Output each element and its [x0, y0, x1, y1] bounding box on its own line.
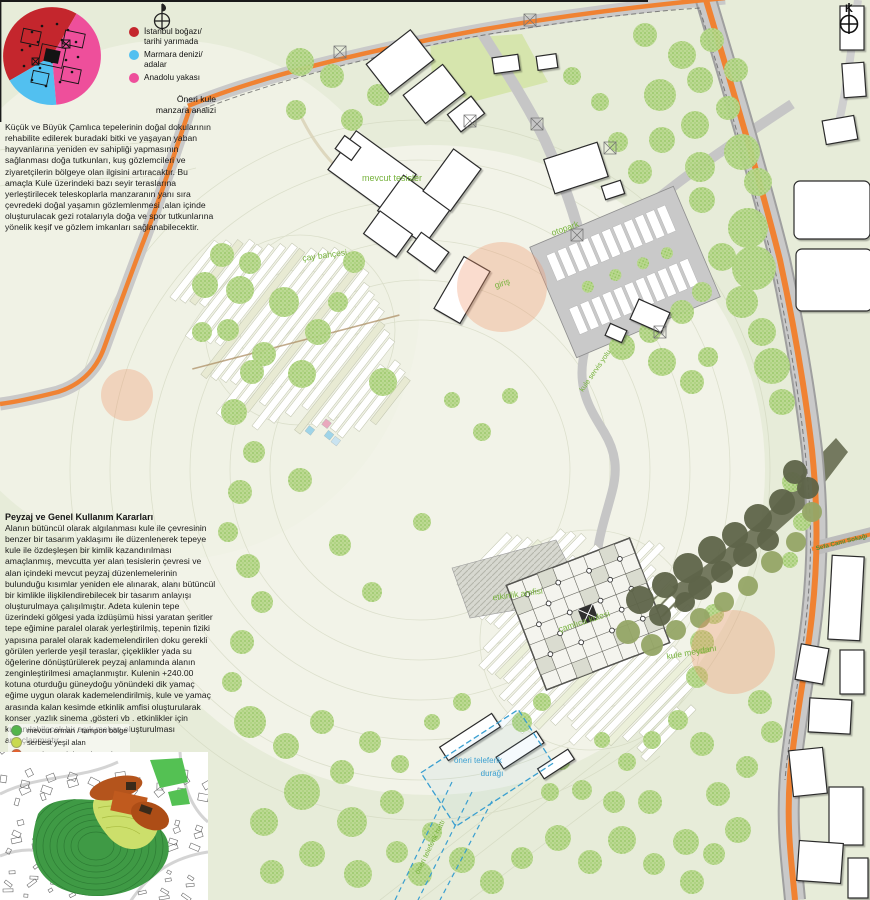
section-heading: Peyzaj ve Genel Kullanım Kararları [5, 512, 217, 522]
tree-icon [341, 109, 363, 131]
tree-icon [222, 672, 242, 692]
tree-icon [192, 272, 218, 298]
tree-icon [305, 319, 331, 345]
tree-icon [473, 423, 491, 441]
tree-icon [424, 714, 440, 730]
tree-icon [210, 243, 234, 267]
building [848, 858, 868, 898]
tree-icon [453, 693, 471, 711]
tree-icon [680, 870, 704, 894]
tree-icon [685, 152, 715, 182]
building [797, 841, 844, 884]
tree-icon [578, 850, 602, 874]
tree-icon [545, 825, 571, 851]
tree-icon [284, 774, 320, 810]
dark-tree-icon [626, 586, 654, 614]
building [795, 644, 829, 684]
tree-icon [782, 552, 798, 568]
site-plan-page: mevcut tesisler otopark çay bahçesi giri… [0, 0, 870, 900]
dark-tree-icon [733, 543, 757, 567]
tree-icon [541, 783, 559, 801]
olive-tree-icon [641, 634, 663, 656]
label-mevcut-tesisler: mevcut tesisler [362, 173, 422, 183]
building [536, 54, 558, 71]
plan-dot [31, 79, 34, 82]
tree-icon [511, 847, 533, 869]
building [794, 181, 870, 239]
tree-icon [698, 347, 718, 367]
paragraph-nature: Küçük ve Büyük Çamlıca tepelerinin doğal… [5, 122, 217, 234]
legend-item-istanbul: İstanbul boğazı/ tarihi yarımada [129, 27, 203, 46]
dark-tree-icon [757, 529, 779, 551]
landuse-minimap [0, 752, 208, 900]
tree-icon [748, 690, 772, 714]
tree-icon [329, 534, 351, 556]
tree-icon [754, 348, 790, 384]
tree-icon [563, 67, 581, 85]
tree-icon [299, 841, 325, 867]
olive-tree-icon [616, 620, 640, 644]
tree-icon [533, 693, 551, 711]
dark-tree-icon [744, 504, 772, 532]
tree-icon [413, 513, 431, 531]
building [822, 115, 858, 144]
building [842, 62, 866, 97]
tree-icon [732, 246, 776, 290]
tree-icon [250, 808, 278, 836]
tree-icon [649, 127, 675, 153]
olive-tree-icon [786, 532, 806, 552]
tree-icon [706, 782, 730, 806]
tree-icon [648, 348, 676, 376]
tree-icon [330, 760, 354, 784]
tree-icon [670, 300, 694, 324]
tree-icon [644, 79, 676, 111]
dark-tree-icon [698, 536, 726, 564]
tree-icon [761, 721, 783, 743]
landuse-label: mevcut orman / tampon bölge [27, 726, 127, 735]
tree-icon [724, 58, 748, 82]
tree-icon [700, 28, 724, 52]
legend-label: Marmara denizi/ adalar [144, 50, 203, 69]
pink-dot-icon [129, 73, 139, 83]
landuse-label: serbest yeşil alan [27, 738, 86, 747]
tree-icon [618, 753, 636, 771]
tree-icon [369, 368, 397, 396]
plan-dot [56, 23, 59, 26]
tree-icon [236, 554, 260, 578]
tree-icon [239, 252, 261, 274]
tree-icon [260, 860, 284, 884]
plan-dot [39, 67, 42, 70]
tree-icon [288, 360, 316, 388]
tree-icon [344, 860, 372, 888]
tree-icon [736, 756, 758, 778]
tree-icon [703, 843, 725, 865]
tree-icon [328, 292, 348, 312]
landuse-item-forest: mevcut orman / tampon bölge [11, 725, 127, 736]
tree-icon [728, 208, 768, 248]
dark-tree-icon [797, 477, 819, 499]
landuse-item-freegreen: serbest yeşil alan [11, 737, 127, 748]
legend-item-marmara: Marmara denizi/ adalar [129, 50, 203, 69]
dark-tree-icon [652, 572, 678, 598]
tree-icon [480, 870, 504, 894]
tree-icon [288, 468, 312, 492]
tree-icon [633, 23, 657, 47]
building [789, 747, 828, 796]
olive-tree-icon [738, 576, 758, 596]
legend-item-anadolu: Anadolu yakası [129, 73, 203, 83]
tree-icon [251, 591, 273, 613]
olive-tree-icon [761, 551, 783, 573]
section-landscape: Peyzaj ve Genel Kullanım Kararları Alanı… [5, 512, 217, 746]
tree-icon [769, 389, 795, 415]
olive-tree-icon [802, 502, 822, 522]
tree-icon [681, 111, 709, 139]
tree-icon [226, 276, 254, 304]
dark-tree-icon [769, 489, 795, 515]
tree-icon [643, 731, 661, 749]
plan-dot [59, 81, 62, 84]
tree-icon [286, 100, 306, 120]
building [829, 787, 863, 845]
tree-icon [252, 342, 276, 366]
tree-icon [692, 282, 712, 302]
tree-icon [724, 134, 760, 170]
tree-icon [221, 399, 247, 425]
tree-icon [234, 706, 266, 738]
tree-icon [668, 710, 688, 730]
legend-label: Anadolu yakası [144, 73, 200, 83]
building [840, 650, 864, 694]
plan-dot [29, 45, 32, 48]
tree-icon [359, 731, 381, 753]
tree-icon [668, 41, 696, 69]
tree-icon [449, 847, 475, 873]
plan-dot [21, 49, 24, 52]
plan-dot [67, 29, 70, 32]
plan-dot [71, 71, 74, 74]
tree-icon [608, 826, 636, 854]
building [796, 249, 870, 311]
plan-dot [45, 85, 48, 88]
tree-icon [362, 582, 382, 602]
tree-icon [603, 791, 625, 813]
tree-icon [572, 780, 592, 800]
tree-icon [217, 319, 239, 341]
label-teleferik-duragi-1: öneri teleferik [454, 756, 503, 765]
blue-dot-icon [129, 50, 139, 60]
tree-icon [638, 790, 662, 814]
tree-icon [310, 710, 334, 734]
tree-icon [643, 853, 665, 875]
tree-icon [337, 807, 367, 837]
tree-icon [726, 286, 758, 318]
tree-icon [725, 817, 751, 843]
label-teleferik-duragi-2: durağı [481, 769, 504, 778]
view-analysis-pie [0, 2, 112, 114]
plan-dot [77, 56, 80, 59]
tree-icon [269, 287, 299, 317]
dark-tree-icon [675, 592, 695, 612]
dark-tree-icon [649, 604, 671, 626]
olive-tree-icon [666, 620, 686, 640]
plan-dot [31, 31, 34, 34]
analysis-title: Öneri kule manzara analizi [118, 94, 216, 115]
plan-dot [41, 25, 44, 28]
tree-icon [243, 441, 265, 463]
tree-icon [687, 67, 713, 93]
building [828, 555, 864, 641]
tree-icon [591, 93, 609, 111]
plan-dot [61, 39, 64, 42]
tree-icon [716, 96, 740, 120]
tree-icon [230, 630, 254, 654]
tree-icon [502, 388, 518, 404]
plan-dot [75, 41, 78, 44]
plan-dot [37, 41, 40, 44]
legend-label: İstanbul boğazı/ tarihi yarımada [144, 27, 202, 46]
tree-icon [218, 522, 238, 542]
tree-icon [680, 370, 704, 394]
tree-icon [628, 160, 652, 184]
plan-dot [65, 59, 68, 62]
tree-icon [689, 187, 715, 213]
olive-tree-icon [714, 592, 734, 612]
building [492, 54, 520, 73]
tree-icon [748, 318, 776, 346]
tree-icon [380, 790, 404, 814]
red-dot-icon [129, 27, 139, 37]
section-body: Alanın bütüncül olarak algılanması kule … [5, 523, 217, 746]
analysis-legend: İstanbul boğazı/ tarihi yarımada Marmara… [129, 27, 203, 83]
tree-icon [444, 392, 460, 408]
tree-icon [192, 322, 212, 342]
plan-dot [23, 65, 26, 68]
yellow-dot-icon [11, 737, 22, 748]
tree-icon [386, 841, 408, 863]
green-dot-icon [11, 725, 22, 736]
tree-icon [744, 168, 772, 196]
tree-icon [273, 733, 299, 759]
building [808, 698, 852, 734]
tree-icon [673, 829, 699, 855]
tree-icon [391, 755, 409, 773]
tree-icon [320, 64, 344, 88]
tree-icon [690, 732, 714, 756]
dark-tree-icon [711, 561, 733, 583]
tree-icon [594, 732, 610, 748]
plan-dot [51, 61, 54, 64]
tree-icon [286, 48, 314, 76]
tree-icon [708, 243, 736, 271]
tree-icon [228, 480, 252, 504]
